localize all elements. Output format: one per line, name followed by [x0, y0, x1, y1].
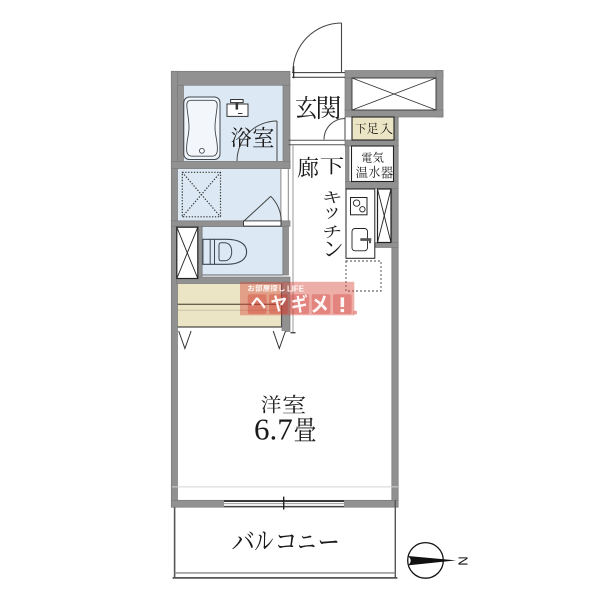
- svg-text:6.7: 6.7: [254, 411, 293, 446]
- svg-text:LIFE: LIFE: [287, 284, 304, 293]
- svg-text:N: N: [456, 556, 471, 565]
